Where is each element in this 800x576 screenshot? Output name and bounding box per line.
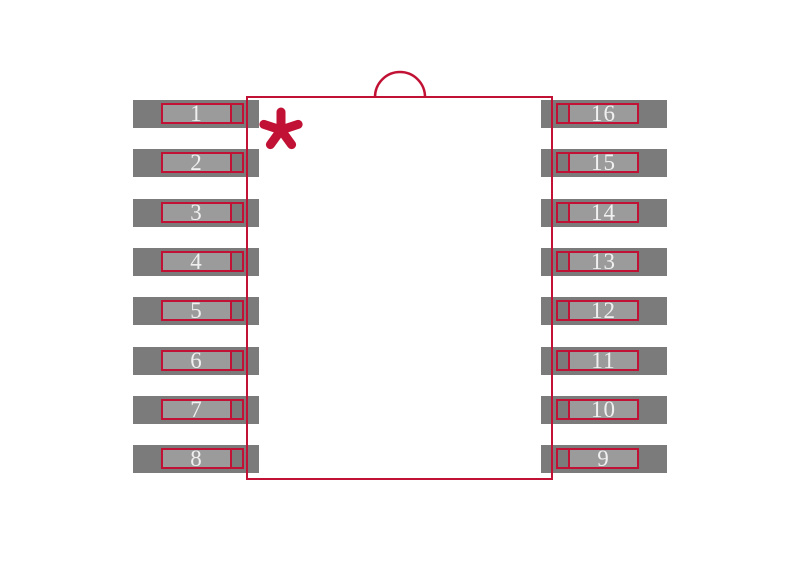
pin-lead-2: 2 xyxy=(161,152,244,173)
lead-tip xyxy=(230,302,242,319)
pad-right-15: 15 xyxy=(541,149,667,177)
lead-tip xyxy=(558,105,570,122)
pin-lead-8: 8 xyxy=(161,448,244,469)
pin-number-10: 10 xyxy=(570,401,637,418)
lead-tip xyxy=(558,401,570,418)
lead-tip xyxy=(230,253,242,270)
pin-lead-15: 15 xyxy=(556,152,639,173)
pin-number-1: 1 xyxy=(163,105,230,122)
pin-number-11: 11 xyxy=(570,352,637,369)
pin-number-5: 5 xyxy=(163,302,230,319)
pin-number-12: 12 xyxy=(570,302,637,319)
lead-tip xyxy=(230,401,242,418)
pin-number-6: 6 xyxy=(163,352,230,369)
pin-number-13: 13 xyxy=(570,253,637,270)
pad-left-7: 7 xyxy=(133,396,259,424)
pin-lead-4: 4 xyxy=(161,251,244,272)
pin-lead-1: 1 xyxy=(161,103,244,124)
pin-lead-3: 3 xyxy=(161,202,244,223)
lead-tip xyxy=(230,154,242,171)
lead-tip xyxy=(558,253,570,270)
pin-lead-16: 16 xyxy=(556,103,639,124)
pin-number-3: 3 xyxy=(163,204,230,221)
pin-number-15: 15 xyxy=(570,154,637,171)
pin-lead-11: 11 xyxy=(556,350,639,371)
pin-lead-13: 13 xyxy=(556,251,639,272)
pin-lead-12: 12 xyxy=(556,300,639,321)
pad-left-8: 8 xyxy=(133,445,259,473)
lead-tip xyxy=(230,105,242,122)
pad-right-11: 11 xyxy=(541,347,667,375)
pad-right-13: 13 xyxy=(541,248,667,276)
pin-number-8: 8 xyxy=(163,450,230,467)
lead-tip xyxy=(230,450,242,467)
lead-tip xyxy=(230,352,242,369)
pin-number-2: 2 xyxy=(163,154,230,171)
pad-right-10: 10 xyxy=(541,396,667,424)
pad-left-3: 3 xyxy=(133,199,259,227)
pad-right-16: 16 xyxy=(541,100,667,128)
lead-tip xyxy=(558,450,570,467)
pad-left-4: 4 xyxy=(133,248,259,276)
pin-lead-10: 10 xyxy=(556,399,639,420)
pin-number-4: 4 xyxy=(163,253,230,270)
lead-tip xyxy=(558,154,570,171)
pin-number-16: 16 xyxy=(570,105,637,122)
lead-tip xyxy=(230,204,242,221)
pad-left-5: 5 xyxy=(133,297,259,325)
index-notch-icon xyxy=(375,72,425,97)
footprint-canvas: 1 2 3 4 5 6 7 xyxy=(0,0,800,576)
lead-tip xyxy=(558,352,570,369)
lead-tip xyxy=(558,302,570,319)
pin-number-7: 7 xyxy=(163,401,230,418)
pad-right-14: 14 xyxy=(541,199,667,227)
lead-tip xyxy=(558,204,570,221)
pad-right-9: 9 xyxy=(541,445,667,473)
pad-left-1: 1 xyxy=(133,100,259,128)
pin-number-9: 9 xyxy=(570,450,637,467)
pad-right-12: 12 xyxy=(541,297,667,325)
pin-lead-9: 9 xyxy=(556,448,639,469)
pin-lead-6: 6 xyxy=(161,350,244,371)
pad-left-2: 2 xyxy=(133,149,259,177)
pin-lead-7: 7 xyxy=(161,399,244,420)
pin-lead-14: 14 xyxy=(556,202,639,223)
package-body-outline xyxy=(246,96,553,480)
pin-number-14: 14 xyxy=(570,204,637,221)
pad-left-6: 6 xyxy=(133,347,259,375)
pin-lead-5: 5 xyxy=(161,300,244,321)
